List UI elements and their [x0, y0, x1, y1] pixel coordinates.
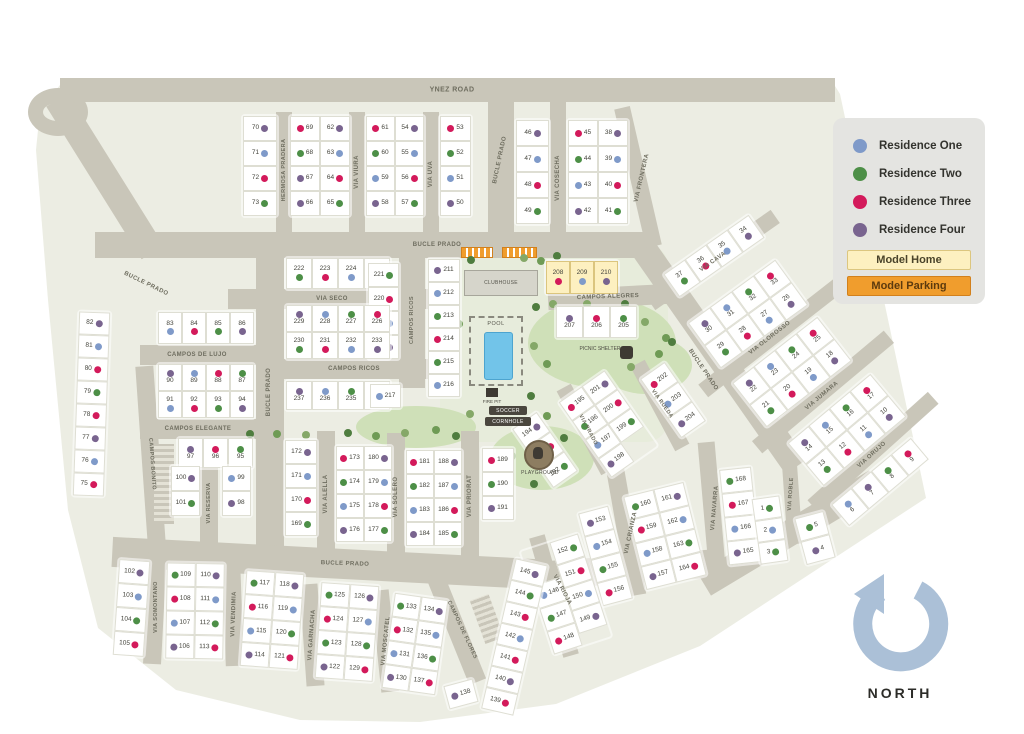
- lot: 131: [385, 640, 415, 668]
- lot-number: 80: [84, 366, 91, 373]
- lot-number: 133: [405, 603, 417, 611]
- lot-group: 173174175176: [336, 446, 364, 542]
- lot-number: 43: [584, 182, 591, 189]
- residence-type-dot-icon: [374, 346, 381, 353]
- lot-block: 138: [443, 679, 478, 710]
- residence-type-dot-icon: [603, 278, 610, 285]
- residence-type-dot-icon: [336, 200, 343, 207]
- lot: 54: [395, 116, 424, 141]
- lot: 46: [516, 120, 549, 146]
- lot-number: 174: [349, 479, 360, 486]
- tree-icon: [452, 432, 460, 440]
- lot: 123: [316, 630, 347, 656]
- residence-type-dot-icon: [531, 570, 539, 578]
- lot-number: 110: [200, 572, 210, 579]
- lot-number: 3: [766, 549, 770, 556]
- lot: 49: [516, 198, 549, 224]
- lot-block: 9089888791929394: [158, 364, 254, 418]
- residence-two-dot-icon: [853, 167, 867, 181]
- lot-number: 164: [678, 564, 690, 573]
- lot-number: 87: [238, 378, 245, 385]
- residence-type-dot-icon: [325, 591, 332, 598]
- residence-type-dot-icon: [167, 370, 174, 377]
- lot-number: 97: [187, 454, 194, 461]
- clubhouse-building: CLUBHOUSE: [464, 270, 538, 296]
- residence-type-dot-icon: [432, 631, 440, 639]
- lot: 52: [440, 141, 471, 166]
- residence-type-dot-icon: [411, 175, 418, 182]
- lot-group: 61605958: [366, 116, 395, 216]
- lot: 69: [290, 116, 320, 141]
- residence-type-dot-icon: [171, 571, 178, 578]
- lot-group: 100101: [171, 466, 200, 516]
- residence-type-dot-icon: [614, 156, 621, 163]
- street-label: VIA VIURA: [354, 155, 360, 189]
- residence-type-dot-icon: [575, 182, 582, 189]
- residence-three-dot-icon: [853, 195, 867, 209]
- street-label: VIA SECO: [316, 296, 348, 302]
- residence-type-dot-icon: [576, 566, 585, 575]
- lot-number: 4: [820, 545, 825, 552]
- residence-type-dot-icon: [390, 649, 398, 657]
- lot: 122: [315, 654, 346, 680]
- lot-block: 125124123122126127128129: [315, 582, 380, 682]
- lot: 76: [74, 449, 106, 473]
- residence-type-dot-icon: [288, 630, 295, 637]
- lot-number: 114: [254, 652, 265, 659]
- lot-number: 16: [846, 409, 856, 419]
- lot-group: 70717273: [243, 116, 277, 216]
- lot-number: 14: [805, 444, 815, 454]
- lot: 178: [364, 494, 392, 518]
- lot: 138: [443, 679, 478, 710]
- residence-type-dot-icon: [447, 150, 454, 157]
- lot-number: 155: [607, 562, 619, 571]
- residence-type-dot-icon: [728, 501, 736, 509]
- residence-type-dot-icon: [297, 200, 304, 207]
- residence-type-dot-icon: [579, 278, 586, 285]
- lot-number: 148: [563, 632, 575, 642]
- street-label: CAMPOS DE LUJO: [167, 352, 227, 358]
- lot: 125: [320, 582, 351, 608]
- lot-number: 224: [346, 266, 357, 273]
- residence-type-dot-icon: [766, 406, 776, 416]
- lot-block: 133132131130134135136137: [382, 593, 449, 696]
- lot-number: 199: [616, 422, 629, 434]
- residence-type-dot-icon: [363, 642, 370, 649]
- residence-type-dot-icon: [613, 398, 623, 408]
- picnic-shelter-label: PICNIC SHELTER: [578, 346, 622, 352]
- lot-number: 82: [86, 320, 93, 327]
- lot: 177: [364, 518, 392, 542]
- lot-number: 119: [277, 605, 288, 612]
- lot-group: 54555657: [395, 116, 424, 216]
- lot-number: 169: [291, 521, 302, 528]
- lot-number: 213: [443, 313, 454, 320]
- lot: 137: [408, 668, 438, 696]
- lot: 66: [290, 191, 320, 216]
- lot-number: 39: [605, 156, 612, 163]
- residence-type-dot-icon: [769, 526, 777, 534]
- residence-type-dot-icon: [261, 175, 268, 182]
- residence-type-dot-icon: [381, 503, 388, 510]
- lot-number: 118: [279, 581, 290, 588]
- lot: 181: [406, 450, 434, 474]
- lot: 167: [722, 490, 756, 517]
- lot-number: 197: [600, 433, 613, 445]
- residence-type-dot-icon: [517, 634, 525, 642]
- lot-number: 230: [294, 338, 305, 345]
- residence-type-dot-icon: [447, 125, 454, 132]
- residence-type-dot-icon: [386, 272, 393, 279]
- playground-label: PLAYGROUND: [505, 470, 575, 476]
- lot-number: 96: [212, 454, 219, 461]
- lot-group: 188187186185: [434, 450, 462, 546]
- residence-type-dot-icon: [811, 546, 820, 555]
- residence-type-dot-icon: [600, 379, 610, 389]
- lot: 119: [272, 596, 303, 622]
- site-map: 7071727369686766626364656160595854555657…: [0, 0, 1024, 734]
- legend-item-label: Residence Three: [879, 196, 971, 208]
- residence-type-dot-icon: [830, 356, 840, 366]
- tree-icon: [246, 430, 254, 438]
- lot: 207: [556, 306, 583, 338]
- residence-type-dot-icon: [393, 625, 401, 633]
- lot: 176: [336, 518, 364, 542]
- residence-type-dot-icon: [135, 593, 142, 600]
- residence-type-dot-icon: [365, 618, 372, 625]
- lot-number: 181: [419, 459, 430, 466]
- lot: 118: [274, 572, 305, 598]
- lot: 44: [568, 146, 598, 172]
- lot: 230: [286, 332, 312, 359]
- lot: 182: [406, 474, 434, 498]
- lot: 183: [406, 498, 434, 522]
- lot-number: 144: [514, 589, 526, 598]
- lot-number: 210: [601, 270, 612, 277]
- lot: 126: [349, 584, 380, 610]
- lot: 232: [338, 332, 364, 359]
- residence-type-dot-icon: [488, 457, 495, 464]
- residence-type-dot-icon: [566, 315, 573, 322]
- pool-label: POOL: [471, 321, 521, 327]
- lot: 81: [78, 335, 110, 359]
- lot-number: 5: [814, 522, 819, 529]
- lot-number: 85: [214, 321, 221, 328]
- lot-number: 23: [770, 368, 780, 378]
- lot-number: 76: [81, 458, 88, 465]
- residence-type-dot-icon: [434, 382, 441, 389]
- lot-number: 189: [497, 457, 508, 464]
- lot-number: 129: [349, 665, 360, 672]
- residence-type-dot-icon: [679, 277, 689, 287]
- lot-number: 220: [374, 296, 385, 303]
- lot: 62: [320, 116, 350, 141]
- residence-type-dot-icon: [584, 589, 593, 598]
- lot: 85: [206, 312, 230, 344]
- lot: 229: [286, 305, 312, 332]
- lot-number: 177: [368, 527, 379, 534]
- lot: 57: [395, 191, 424, 216]
- lot-number: 163: [673, 541, 685, 550]
- legend-item-residence-three: Residence Three: [845, 188, 973, 216]
- residence-type-dot-icon: [94, 343, 101, 350]
- lot-number: 222: [294, 266, 305, 273]
- lot: 115: [241, 618, 272, 644]
- lot: 42: [568, 198, 598, 224]
- lot-number: 157: [657, 569, 669, 578]
- lot-number: 185: [438, 531, 449, 538]
- residence-type-dot-icon: [488, 481, 495, 488]
- lot-number: 81: [85, 343, 92, 350]
- residence-type-dot-icon: [614, 130, 621, 137]
- lot: 61: [366, 116, 395, 141]
- residence-type-dot-icon: [410, 507, 417, 514]
- lot: 215: [428, 351, 460, 374]
- lawn-area: [356, 406, 476, 448]
- lot-group: 110111112113: [194, 563, 225, 659]
- lot: 59: [366, 166, 395, 191]
- lot: 38: [598, 120, 628, 146]
- lot-number: 203: [670, 392, 683, 404]
- lot-group: 45444342: [568, 120, 598, 224]
- lot-number: 91: [166, 397, 173, 404]
- lot: 111: [195, 587, 224, 612]
- lot-group: 211212213214215216: [428, 259, 460, 397]
- lot: 130: [382, 664, 412, 692]
- residence-type-dot-icon: [320, 663, 327, 670]
- residence-type-dot-icon: [304, 449, 311, 456]
- lot-number: 212: [443, 290, 454, 297]
- lot-number: 171: [291, 473, 302, 480]
- residence-type-dot-icon: [188, 500, 195, 507]
- lot-number: 98: [237, 500, 244, 507]
- lot-number: 232: [346, 338, 357, 345]
- lot-group: 83848586: [158, 312, 254, 344]
- lot-number: 187: [438, 483, 449, 490]
- lot-number: 58: [381, 200, 388, 207]
- lot-number: 8: [889, 473, 896, 480]
- lot: 228: [312, 305, 338, 332]
- lot-group: 38394041: [598, 120, 628, 224]
- residence-type-dot-icon: [434, 313, 441, 320]
- lot-number: 32: [748, 293, 758, 303]
- lot-number: 78: [83, 412, 90, 419]
- residence-type-dot-icon: [411, 125, 418, 132]
- lot: 43: [568, 172, 598, 198]
- lot-number: 67: [306, 175, 313, 182]
- lot: 75: [73, 472, 105, 496]
- residence-type-dot-icon: [575, 130, 582, 137]
- lot: 128: [345, 632, 376, 658]
- lot-number: 48: [524, 182, 531, 189]
- lot-number: 113: [199, 644, 209, 651]
- lot: 117: [245, 570, 276, 596]
- lot: 91: [158, 391, 182, 418]
- lot-block: 8281807978777675: [73, 312, 110, 497]
- tree-icon: [530, 480, 538, 488]
- lot: 227: [338, 305, 364, 332]
- lot-number: 139: [489, 696, 501, 705]
- residence-type-dot-icon: [642, 549, 650, 557]
- lot-number: 101: [176, 500, 187, 507]
- tree-icon: [641, 318, 649, 326]
- lot-number: 201: [590, 385, 603, 397]
- tree-icon: [467, 256, 475, 264]
- lot: 78: [75, 403, 107, 427]
- tree-icon: [532, 303, 540, 311]
- lot-number: 127: [352, 617, 363, 624]
- residence-type-dot-icon: [348, 346, 355, 353]
- residence-type-dot-icon: [171, 595, 178, 602]
- lot: 209: [570, 261, 594, 294]
- residence-type-dot-icon: [631, 502, 639, 510]
- lot-number: 223: [320, 266, 331, 273]
- residence-type-dot-icon: [726, 477, 734, 485]
- cornhole-badge: CORNHOLE: [485, 417, 531, 426]
- lot: 236: [312, 381, 338, 410]
- lot: 51: [440, 166, 471, 191]
- residence-type-dot-icon: [450, 691, 459, 700]
- residence-type-dot-icon: [304, 521, 311, 528]
- residence-type-dot-icon: [322, 274, 329, 281]
- residence-type-dot-icon: [213, 572, 220, 579]
- lot-number: 173: [349, 455, 360, 462]
- lot-number: 72: [252, 175, 259, 182]
- residence-type-dot-icon: [451, 531, 458, 538]
- lot: 212: [428, 282, 460, 305]
- lot-block: 83848586: [158, 312, 254, 344]
- tree-icon: [520, 254, 528, 262]
- residence-type-dot-icon: [170, 643, 177, 650]
- lot-number: 124: [332, 616, 343, 623]
- residence-type-dot-icon: [247, 627, 254, 634]
- tree-icon: [302, 431, 310, 439]
- residence-type-dot-icon: [381, 479, 388, 486]
- lot-number: 41: [605, 208, 612, 215]
- lot: 135: [415, 620, 445, 648]
- lot: 106: [165, 634, 194, 659]
- lot-number: 45: [584, 130, 591, 137]
- lot: 189: [482, 448, 514, 472]
- residence-type-dot-icon: [691, 561, 699, 569]
- lot: 79: [76, 380, 108, 404]
- lot: 211: [428, 259, 460, 282]
- lot: 116: [243, 594, 274, 620]
- lot-group: 207206205: [556, 306, 637, 338]
- residence-type-dot-icon: [297, 125, 304, 132]
- lot: 87: [230, 364, 254, 391]
- lot-number: 131: [399, 651, 411, 659]
- lot-group: 229228227226: [286, 305, 390, 332]
- lot-number: 198: [614, 452, 627, 464]
- lot: 53: [440, 116, 471, 141]
- lot-number: 121: [274, 653, 285, 660]
- residence-type-dot-icon: [434, 290, 441, 297]
- lot-number: 167: [737, 500, 748, 508]
- picnic-shelter-icon: [620, 346, 633, 359]
- lot: 134: [418, 596, 448, 624]
- tree-icon: [466, 410, 474, 418]
- lot-number: 202: [657, 372, 670, 384]
- lot: 94: [230, 391, 254, 418]
- residence-type-dot-icon: [614, 182, 621, 189]
- lot-number: 83: [166, 321, 173, 328]
- lot-number: 235: [346, 396, 357, 403]
- lot-number: 44: [584, 156, 591, 163]
- residence-type-dot-icon: [261, 200, 268, 207]
- lot-number: 226: [372, 319, 383, 326]
- lot-number: 211: [443, 267, 453, 274]
- lot-block: 4544434238394041: [568, 120, 628, 224]
- lot-number: 175: [349, 503, 360, 510]
- residence-type-dot-icon: [167, 328, 174, 335]
- lot-number: 53: [456, 125, 463, 132]
- lot-number: 104: [121, 616, 132, 623]
- residence-type-dot-icon: [372, 175, 379, 182]
- residence-type-dot-icon: [132, 641, 139, 648]
- residence-type-dot-icon: [191, 328, 198, 335]
- residence-type-dot-icon: [348, 274, 355, 281]
- residence-type-dot-icon: [362, 666, 369, 673]
- street-label: VIA UVA: [428, 161, 434, 187]
- lot-number: 111: [200, 596, 210, 603]
- lot: 71: [243, 141, 277, 166]
- lot-number: 166: [740, 524, 751, 532]
- residence-type-dot-icon: [336, 175, 343, 182]
- residence-type-dot-icon: [322, 639, 329, 646]
- residence-type-dot-icon: [250, 579, 257, 586]
- lot: 110: [195, 563, 224, 588]
- lot-number: 66: [306, 200, 313, 207]
- residence-type-dot-icon: [575, 156, 582, 163]
- lot-number: 102: [124, 568, 135, 575]
- pool-area: POOL: [469, 316, 523, 386]
- residence-type-dot-icon: [296, 311, 303, 318]
- lot-number: 61: [381, 125, 388, 132]
- lot-number: 150: [572, 592, 584, 602]
- lot-group: 8281807978777675: [73, 312, 110, 497]
- residence-type-dot-icon: [787, 389, 797, 399]
- residence-type-dot-icon: [534, 208, 541, 215]
- lot: 103: [116, 583, 149, 609]
- lot-number: 55: [401, 150, 408, 157]
- residence-type-dot-icon: [743, 232, 753, 242]
- lot: 179: [364, 470, 392, 494]
- legend-item-residence-one: Residence One: [845, 132, 973, 160]
- lot-number: 195: [574, 395, 587, 407]
- lot-number: 161: [661, 494, 673, 503]
- lot-number: 207: [564, 323, 575, 330]
- lot: 213: [428, 305, 460, 328]
- residence-type-dot-icon: [721, 347, 731, 357]
- lot: 172: [285, 440, 317, 464]
- lot: 237: [286, 381, 312, 410]
- lot-number: 158: [651, 546, 663, 555]
- lot: 98: [222, 491, 251, 516]
- tree-icon: [560, 434, 568, 442]
- lot: 82: [78, 312, 110, 336]
- lot: 173: [336, 446, 364, 470]
- lot: 56: [395, 166, 424, 191]
- residence-type-dot-icon: [367, 594, 374, 601]
- lot-number: 90: [166, 378, 173, 385]
- residence-type-dot-icon: [239, 370, 246, 377]
- lot-number: 200: [603, 403, 616, 415]
- residence-type-dot-icon: [340, 503, 347, 510]
- lot-number: 125: [334, 592, 345, 599]
- lot: 100: [171, 466, 200, 491]
